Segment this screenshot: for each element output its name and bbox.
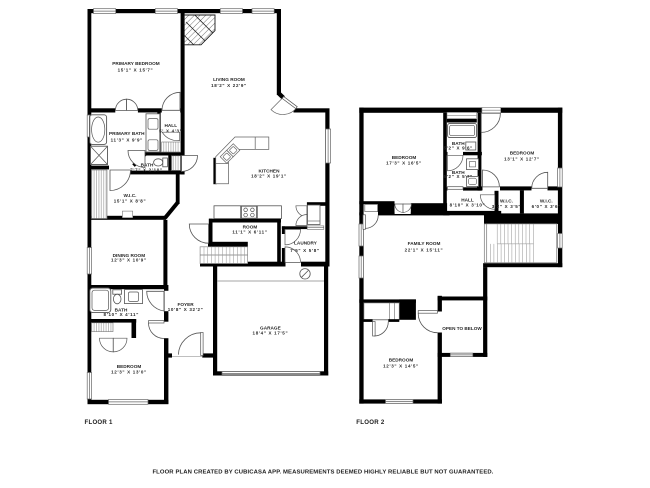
svg-text:BEDROOM: BEDROOM bbox=[510, 151, 535, 156]
svg-text:PRIMARY BEDROOM: PRIMARY BEDROOM bbox=[112, 61, 160, 66]
svg-text:HALL: HALL bbox=[165, 123, 178, 128]
svg-text:12'3" X 10'9": 12'3" X 10'9" bbox=[111, 258, 147, 263]
svg-text:5'2" X 5'7": 5'2" X 5'7" bbox=[444, 174, 473, 179]
svg-text:7'5" X 5'8": 7'5" X 5'8" bbox=[290, 248, 319, 253]
svg-text:8'10" X 4'11": 8'10" X 4'11" bbox=[104, 312, 140, 317]
svg-text:BEDROOM: BEDROOM bbox=[117, 364, 142, 369]
svg-text:8'10" X 3'10": 8'10" X 3'10" bbox=[450, 203, 486, 208]
svg-text:FAMILY ROOM: FAMILY ROOM bbox=[408, 241, 441, 246]
svg-text:BEDROOM: BEDROOM bbox=[389, 358, 414, 363]
svg-text:18'4" X 17'5": 18'4" X 17'5" bbox=[253, 330, 289, 335]
svg-text:FLOOR 2: FLOOR 2 bbox=[356, 419, 385, 426]
svg-text:5'2" X 9'6": 5'2" X 9'6" bbox=[444, 146, 473, 151]
svg-text:18'2" X 22'9": 18'2" X 22'9" bbox=[211, 83, 247, 88]
svg-text:LAUNDRY: LAUNDRY bbox=[294, 241, 318, 246]
svg-text:15'1" X 8'8": 15'1" X 8'8" bbox=[114, 198, 147, 203]
svg-text:PRIMARY BATH: PRIMARY BATH bbox=[109, 131, 145, 136]
svg-text:12'3" X 13'0": 12'3" X 13'0" bbox=[111, 370, 147, 375]
svg-text:W.I.C.: W.I.C. bbox=[540, 199, 553, 204]
svg-text:11'1" X 6'11": 11'1" X 6'11" bbox=[232, 230, 267, 235]
svg-text:18'2" X 19'1": 18'2" X 19'1" bbox=[251, 174, 287, 179]
svg-text:W.I.C.: W.I.C. bbox=[124, 193, 137, 198]
svg-text:11'3" X 9'9": 11'3" X 9'9" bbox=[111, 138, 143, 143]
svg-text:3'2" X 3'5": 3'2" X 3'5" bbox=[492, 204, 521, 209]
svg-text:22'1" X 15'11": 22'1" X 15'11" bbox=[405, 247, 444, 252]
svg-text:7'7" X 2'10": 7'7" X 2'10" bbox=[130, 167, 163, 172]
svg-text:W.I.C.: W.I.C. bbox=[500, 199, 513, 204]
svg-text:13'1" X 12'7": 13'1" X 12'7" bbox=[504, 157, 540, 162]
svg-text:15'1" X 15'7": 15'1" X 15'7" bbox=[118, 67, 154, 72]
svg-text:17'3" X 16'5": 17'3" X 16'5" bbox=[386, 161, 422, 166]
svg-text:OPEN TO BELOW: OPEN TO BELOW bbox=[442, 326, 482, 331]
svg-text:HALL: HALL bbox=[461, 197, 474, 202]
svg-text:10'8" X 32'2": 10'8" X 32'2" bbox=[168, 307, 204, 312]
svg-text:6'0" X 3'6": 6'0" X 3'6" bbox=[532, 204, 561, 209]
svg-text:ROOM: ROOM bbox=[243, 224, 258, 229]
svg-text:5' X 4'3": 5' X 4'3" bbox=[159, 129, 182, 134]
svg-text:BEDROOM: BEDROOM bbox=[392, 155, 417, 160]
svg-text:FLOOR 1: FLOOR 1 bbox=[85, 419, 114, 426]
svg-text:12'3" X 14'5": 12'3" X 14'5" bbox=[383, 363, 419, 368]
svg-text:LIVING ROOM: LIVING ROOM bbox=[213, 77, 245, 82]
svg-text:FLOOR PLAN CREATED BY CUBICASA: FLOOR PLAN CREATED BY CUBICASA APP. MEAS… bbox=[152, 470, 493, 476]
